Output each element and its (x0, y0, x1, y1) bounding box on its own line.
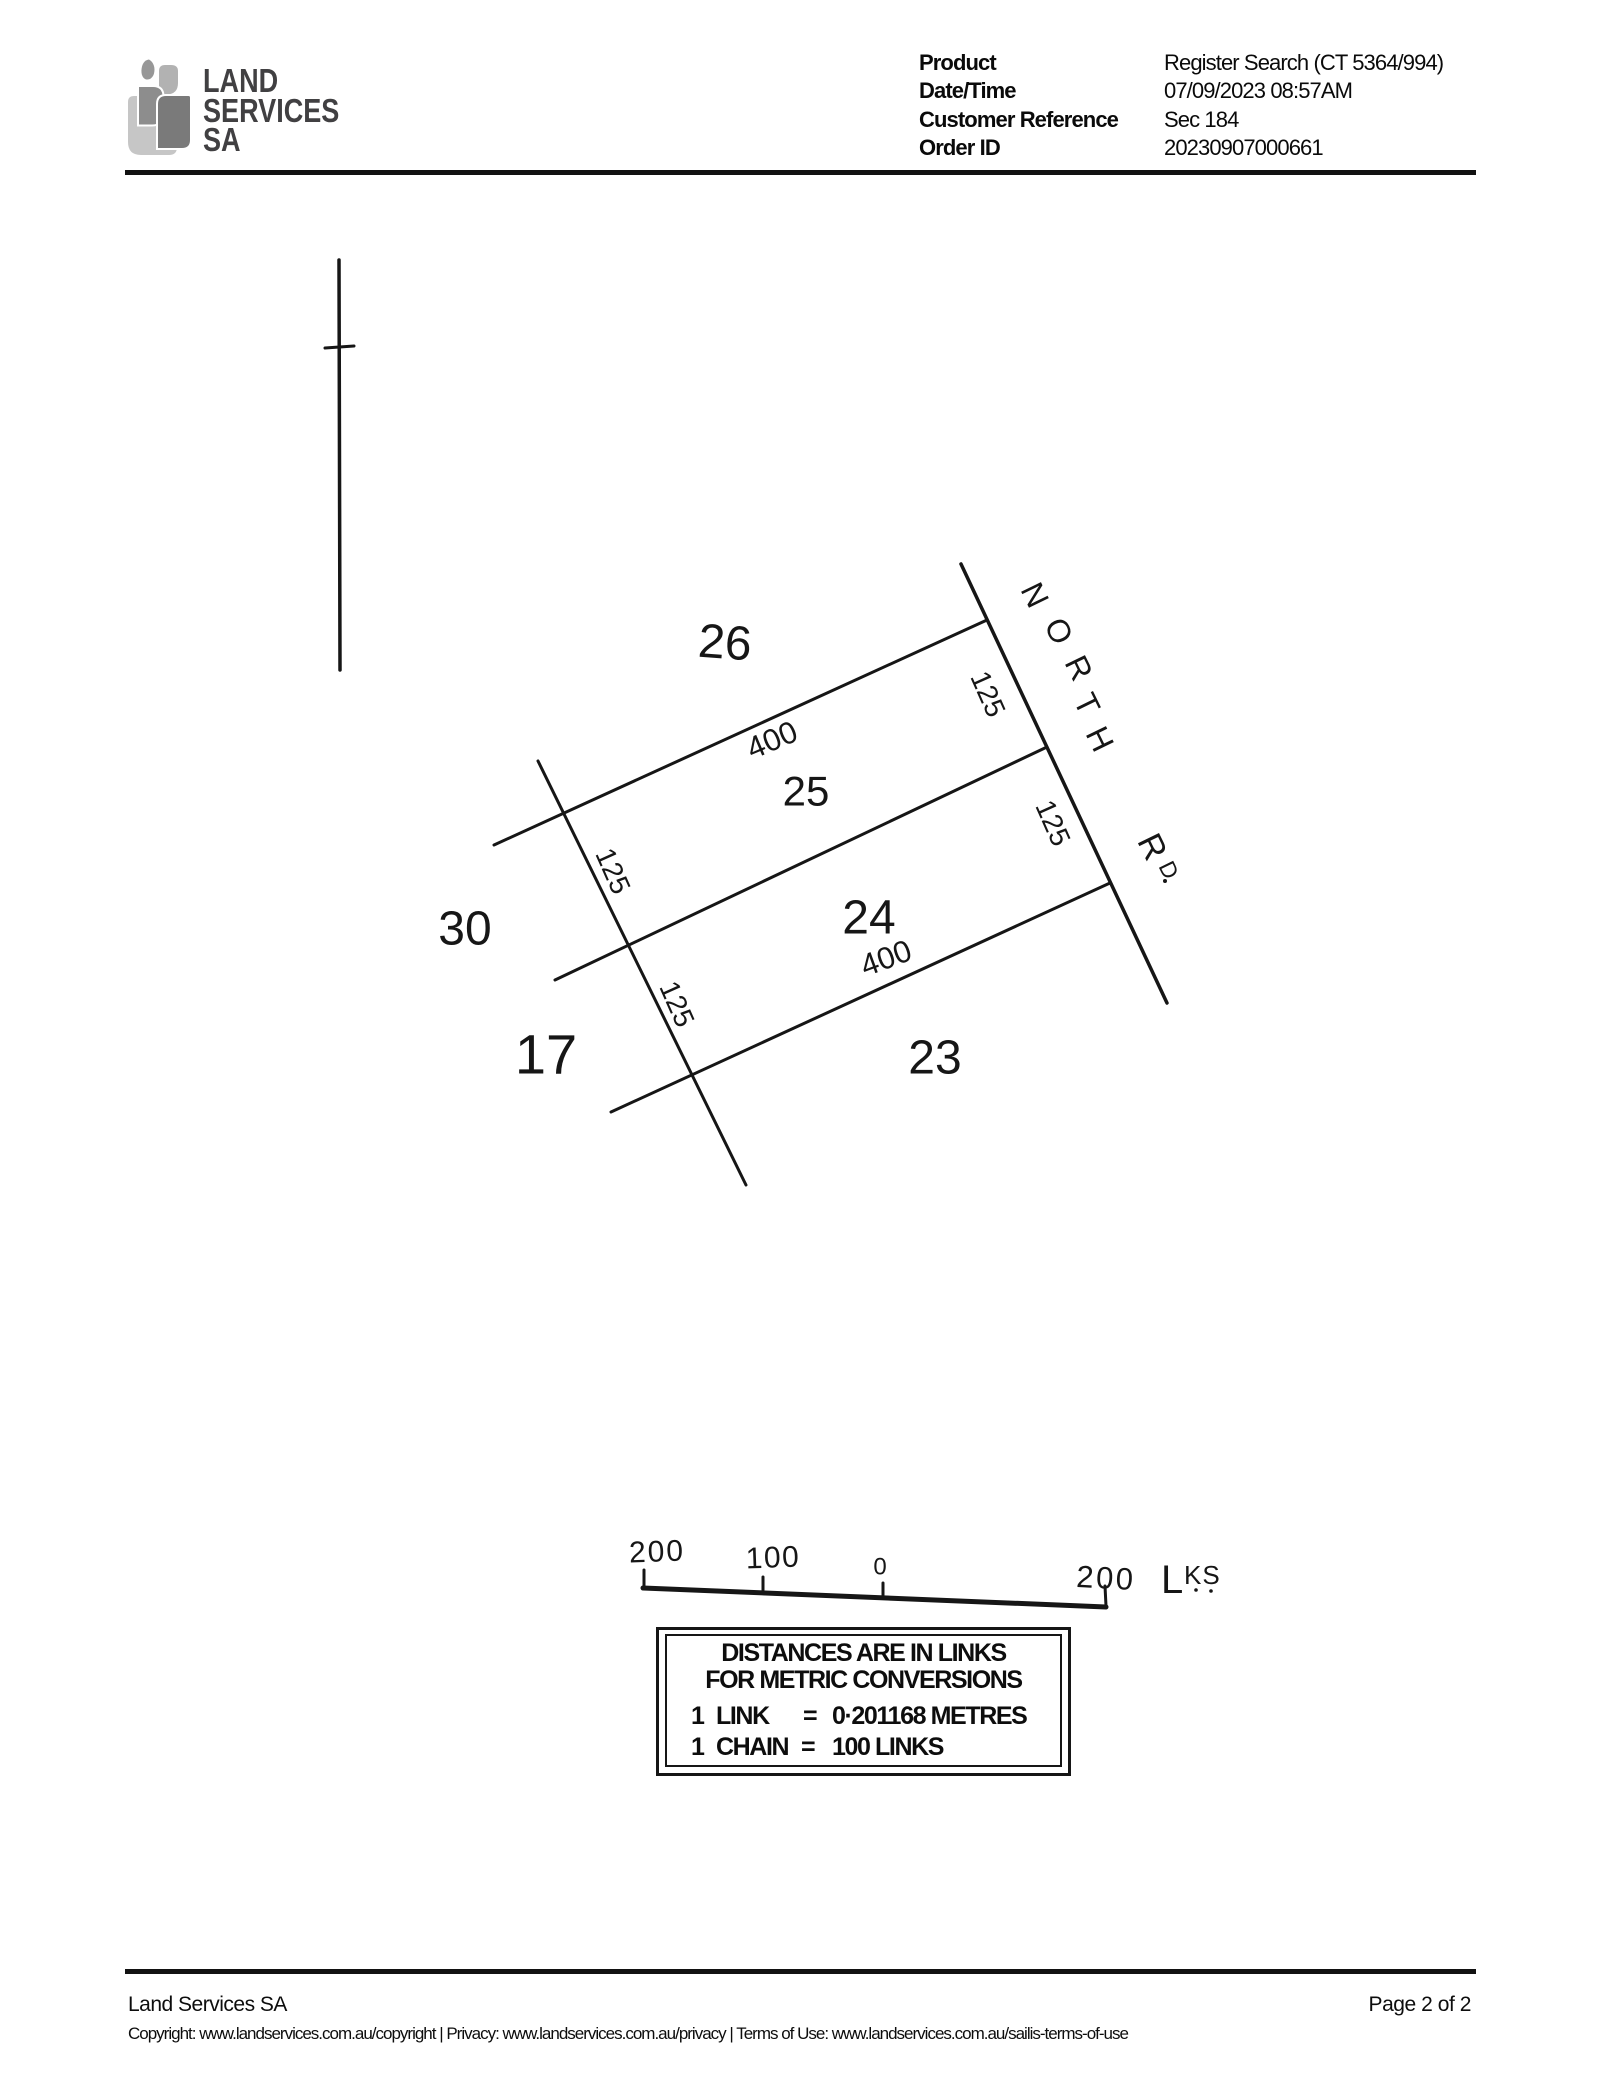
svg-text:D: D (1154, 857, 1185, 883)
svg-text:200: 200 (628, 1535, 685, 1570)
svg-text:26: 26 (697, 615, 754, 672)
svg-text:L: L (1161, 1558, 1183, 1602)
svg-text:125: 125 (964, 666, 1011, 721)
svg-text:400: 400 (741, 714, 802, 766)
svg-text:H: H (1079, 721, 1121, 758)
svg-text:125: 125 (589, 843, 636, 898)
svg-text:24: 24 (842, 892, 895, 945)
svg-text:125: 125 (1029, 795, 1076, 850)
svg-text:125: 125 (653, 976, 700, 1031)
svg-text:100: 100 (745, 1541, 801, 1576)
svg-text:R: R (1058, 650, 1100, 687)
svg-text:30: 30 (438, 903, 491, 956)
svg-text:23: 23 (908, 1032, 961, 1085)
svg-text:200: 200 (1076, 1559, 1137, 1597)
svg-text:N: N (1014, 577, 1056, 614)
svg-text:T: T (1067, 687, 1108, 720)
svg-text:17: 17 (515, 1023, 577, 1086)
svg-text:0: 0 (873, 1554, 886, 1581)
svg-text:KS: KS (1184, 1560, 1221, 1590)
svg-text:O: O (1037, 612, 1080, 650)
svg-text:25: 25 (783, 768, 830, 815)
